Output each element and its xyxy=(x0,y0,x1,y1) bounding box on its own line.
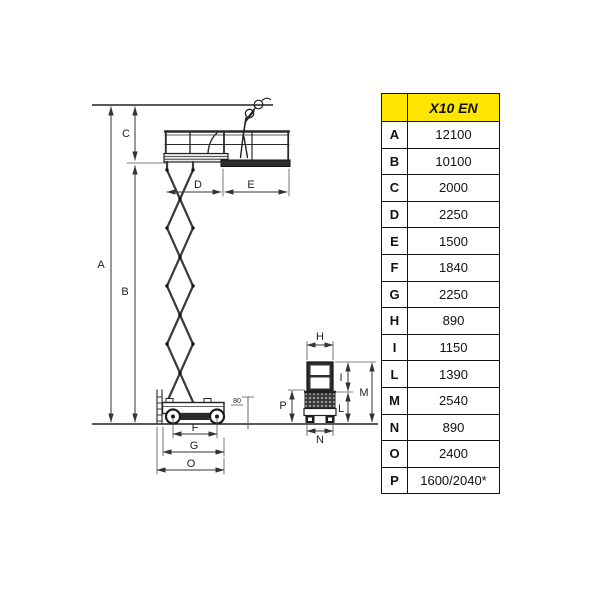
dim-value: 1500 xyxy=(408,228,500,255)
spec-row: L1390 xyxy=(382,361,500,388)
dim-value: 1390 xyxy=(408,361,500,388)
operator-figure xyxy=(241,98,271,157)
spec-row: M2540 xyxy=(382,387,500,414)
guardrail-window xyxy=(311,366,330,376)
spec-row: C2000 xyxy=(382,175,500,202)
spec-row: P1600/2040* xyxy=(382,467,500,494)
dim-key: G xyxy=(382,281,408,308)
ladder-rungs xyxy=(157,397,162,421)
spec-row: O2400 xyxy=(382,441,500,468)
dim-value: 2000 xyxy=(408,175,500,202)
dim-A-label: A xyxy=(97,259,105,271)
dim-O-label: O xyxy=(187,458,196,470)
spec-row: A12100 xyxy=(382,122,500,149)
dim-key: N xyxy=(382,414,408,441)
pothole-guard xyxy=(180,413,209,420)
dim-key: M xyxy=(382,387,408,414)
spec-row: D2250 xyxy=(382,201,500,228)
dim-value: 12100 xyxy=(408,122,500,149)
stowed-chassis xyxy=(304,409,336,416)
entry-gate-curve xyxy=(208,133,217,153)
reach-hook-curve xyxy=(262,98,271,100)
spec-row: G2250 xyxy=(382,281,500,308)
dim-value: 1840 xyxy=(408,254,500,281)
stowed-view: H P I L M N xyxy=(279,331,376,446)
dim-value: 890 xyxy=(408,414,500,441)
dim-key: A xyxy=(382,122,408,149)
platform-assembly xyxy=(164,132,290,167)
dim-key: F xyxy=(382,254,408,281)
dim-L-label: L xyxy=(338,403,344,415)
dim-clearance-label: 80 xyxy=(233,398,241,405)
dim-C-label: C xyxy=(122,128,130,140)
scissor-lift-datasheet: A C B xyxy=(0,0,600,600)
scissor-pivots xyxy=(165,168,194,374)
dim-value: 2250 xyxy=(408,281,500,308)
dim-value: 1600/2040* xyxy=(408,467,500,494)
scissor-mechanism xyxy=(165,162,194,402)
spec-row: H890 xyxy=(382,308,500,335)
dim-value: 1150 xyxy=(408,334,500,361)
dim-key: I xyxy=(382,334,408,361)
dim-value: 10100 xyxy=(408,148,500,175)
spec-row: I1150 xyxy=(382,334,500,361)
dim-G-label: G xyxy=(190,440,199,452)
dim-key: D xyxy=(382,201,408,228)
dim-value: 2250 xyxy=(408,201,500,228)
spec-table-model-header: X10 EN xyxy=(408,94,500,122)
elevation-view: A C B xyxy=(97,98,290,474)
stowed-scissor-stack xyxy=(305,393,335,408)
spec-row: F1840 xyxy=(382,254,500,281)
extension-deck xyxy=(221,160,290,167)
dim-key: H xyxy=(382,308,408,335)
dim-key: E xyxy=(382,228,408,255)
spec-row: B10100 xyxy=(382,148,500,175)
dim-key: B xyxy=(382,148,408,175)
dim-D-label: D xyxy=(194,179,202,191)
dim-B-label: B xyxy=(121,286,128,298)
dim-value: 2400 xyxy=(408,441,500,468)
dim-I-label: I xyxy=(339,372,342,384)
dim-key: C xyxy=(382,175,408,202)
wheel-hub xyxy=(308,418,312,422)
wheel-hub xyxy=(328,418,332,422)
dim-value: 890 xyxy=(408,308,500,335)
dim-N-label: N xyxy=(316,434,324,446)
dimension-diagram: A C B xyxy=(0,0,600,600)
guardrail-window xyxy=(311,378,330,389)
dim-F-label: F xyxy=(192,422,199,434)
dim-M-label: M xyxy=(359,387,368,399)
spec-table-header-row: X10 EN xyxy=(382,94,500,122)
spec-row: E1500 xyxy=(382,228,500,255)
dim-P-label: P xyxy=(279,400,286,412)
dim-H-label: H xyxy=(316,331,324,343)
dim-key: L xyxy=(382,361,408,388)
spec-table: X10 EN A12100 B10100 C2000 D2250 E1500 F… xyxy=(381,93,500,494)
dim-key: P xyxy=(382,467,408,494)
operator-legs xyxy=(241,137,248,158)
dim-value: 2540 xyxy=(408,387,500,414)
dim-key: O xyxy=(382,441,408,468)
main-deck xyxy=(164,154,228,163)
spec-row: N890 xyxy=(382,414,500,441)
spec-table-header-corner xyxy=(382,94,408,122)
dim-E-label: E xyxy=(247,179,254,191)
